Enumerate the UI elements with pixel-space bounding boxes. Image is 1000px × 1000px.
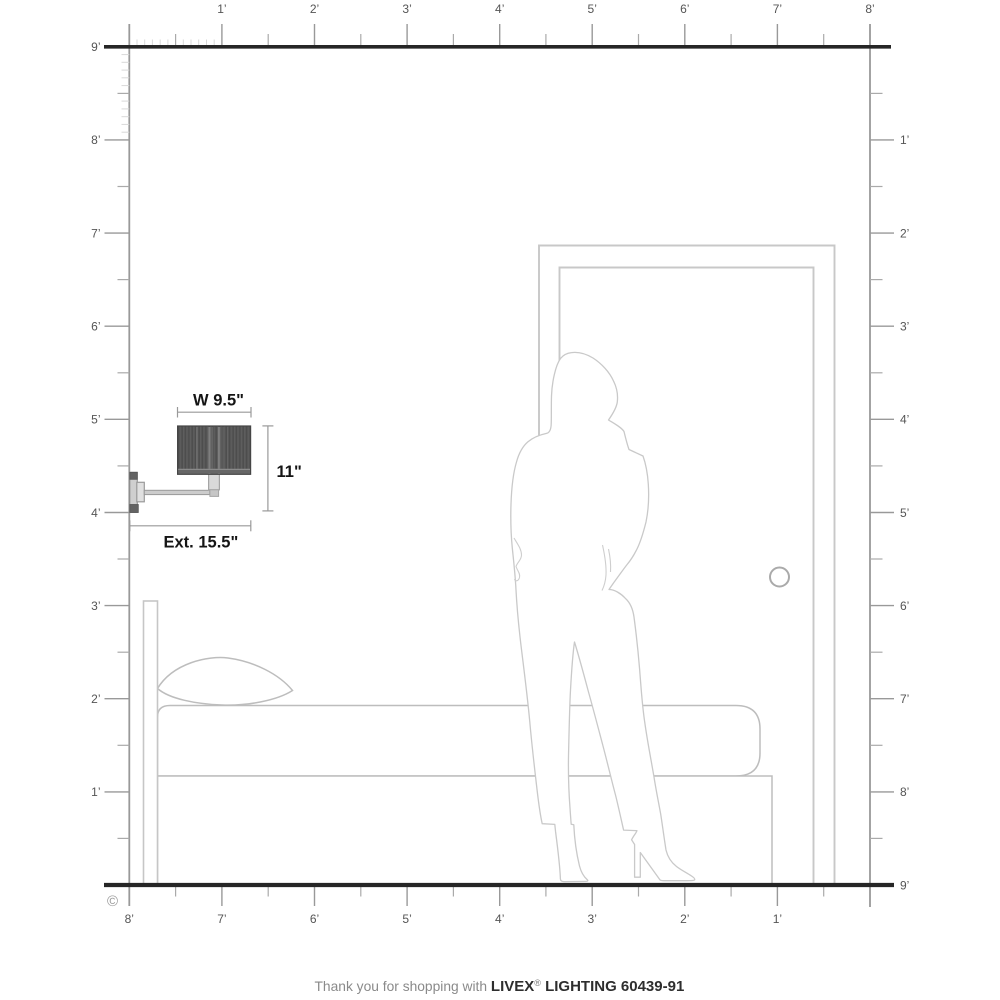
svg-text:4’: 4’ (495, 2, 504, 16)
svg-text:7’: 7’ (773, 2, 782, 16)
svg-text:5’: 5’ (588, 2, 597, 16)
svg-text:3’: 3’ (900, 320, 909, 334)
svg-text:6’: 6’ (91, 320, 100, 334)
svg-text:2’: 2’ (680, 912, 689, 926)
svg-text:4’: 4’ (495, 912, 504, 926)
svg-text:7’: 7’ (217, 912, 226, 926)
svg-text:5’: 5’ (402, 912, 411, 926)
svg-text:2’: 2’ (91, 692, 100, 706)
svg-text:W 9.5": W 9.5" (193, 392, 244, 410)
svg-text:8’: 8’ (125, 912, 134, 926)
svg-text:2’: 2’ (310, 2, 319, 16)
svg-text:7’: 7’ (91, 226, 100, 240)
svg-text:11": 11" (277, 463, 302, 481)
svg-text:3’: 3’ (91, 599, 100, 613)
svg-text:1’: 1’ (91, 785, 100, 799)
svg-text:4’: 4’ (91, 506, 100, 520)
svg-text:Thank you for shopping with LI: Thank you for shopping with LIVEX® LIGHT… (315, 978, 685, 995)
svg-text:6’: 6’ (680, 2, 689, 16)
svg-text:6’: 6’ (310, 912, 319, 926)
svg-text:9’: 9’ (91, 40, 100, 54)
svg-text:6’: 6’ (900, 599, 909, 613)
svg-text:8’: 8’ (865, 2, 874, 16)
svg-text:7’: 7’ (900, 692, 909, 706)
svg-text:5’: 5’ (900, 506, 909, 520)
svg-text:4’: 4’ (900, 413, 909, 427)
svg-text:1’: 1’ (900, 133, 909, 147)
svg-text:1’: 1’ (217, 2, 226, 16)
svg-text:1’: 1’ (773, 912, 782, 926)
svg-text:9’: 9’ (900, 878, 909, 892)
svg-text:8’: 8’ (900, 785, 909, 799)
svg-text:5’: 5’ (91, 413, 100, 427)
svg-text:Ext. 15.5": Ext. 15.5" (164, 534, 239, 552)
svg-text:3’: 3’ (588, 912, 597, 926)
svg-text:2’: 2’ (900, 226, 909, 240)
svg-text:8’: 8’ (91, 133, 100, 147)
svg-text:©: © (107, 893, 118, 910)
svg-text:3’: 3’ (402, 2, 411, 16)
